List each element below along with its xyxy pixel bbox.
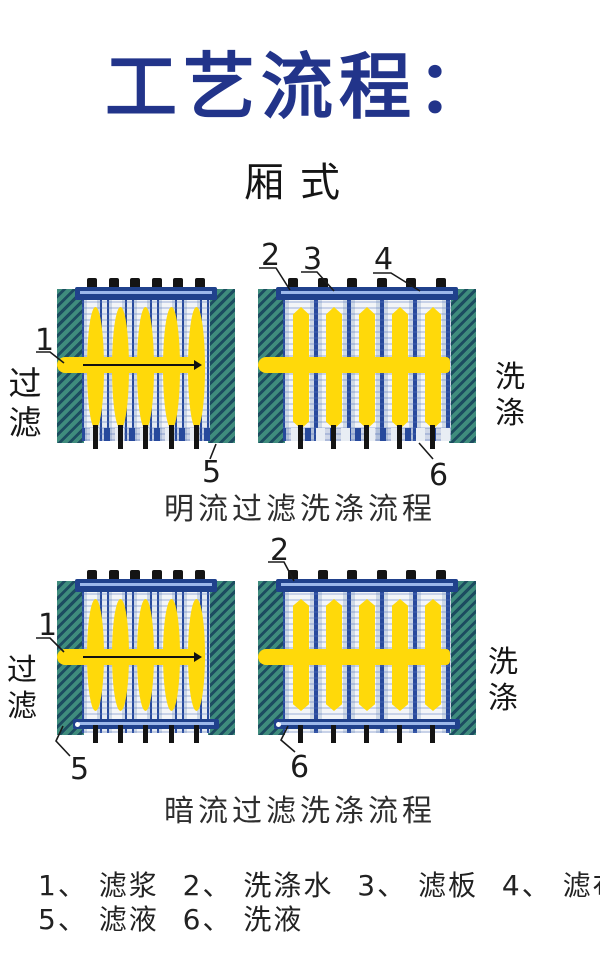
callout-3: 3 — [303, 242, 322, 277]
leader-lines — [0, 0, 600, 977]
page: 工艺流程： 厢式 — [0, 0, 600, 977]
callout-2: 2 — [261, 238, 280, 273]
leader-line-6d — [281, 726, 295, 752]
callout-5: 5 — [70, 752, 89, 787]
leader-line-6b — [419, 443, 433, 459]
callout-2: 2 — [270, 533, 289, 568]
callout-6: 6 — [290, 750, 309, 785]
callout-1: 1 — [35, 323, 54, 358]
side-label-filtration: 过滤 — [6, 653, 38, 725]
side-label-filtration: 过滤 — [7, 364, 43, 442]
callout-4: 4 — [374, 242, 393, 277]
callout-6: 6 — [429, 458, 448, 493]
leader-line-5c — [56, 726, 70, 756]
callout-5: 5 — [202, 455, 221, 490]
side-label-washing: 洗涤 — [487, 645, 519, 717]
side-label-washing: 洗涤 — [494, 360, 526, 432]
callout-1: 1 — [38, 608, 57, 643]
